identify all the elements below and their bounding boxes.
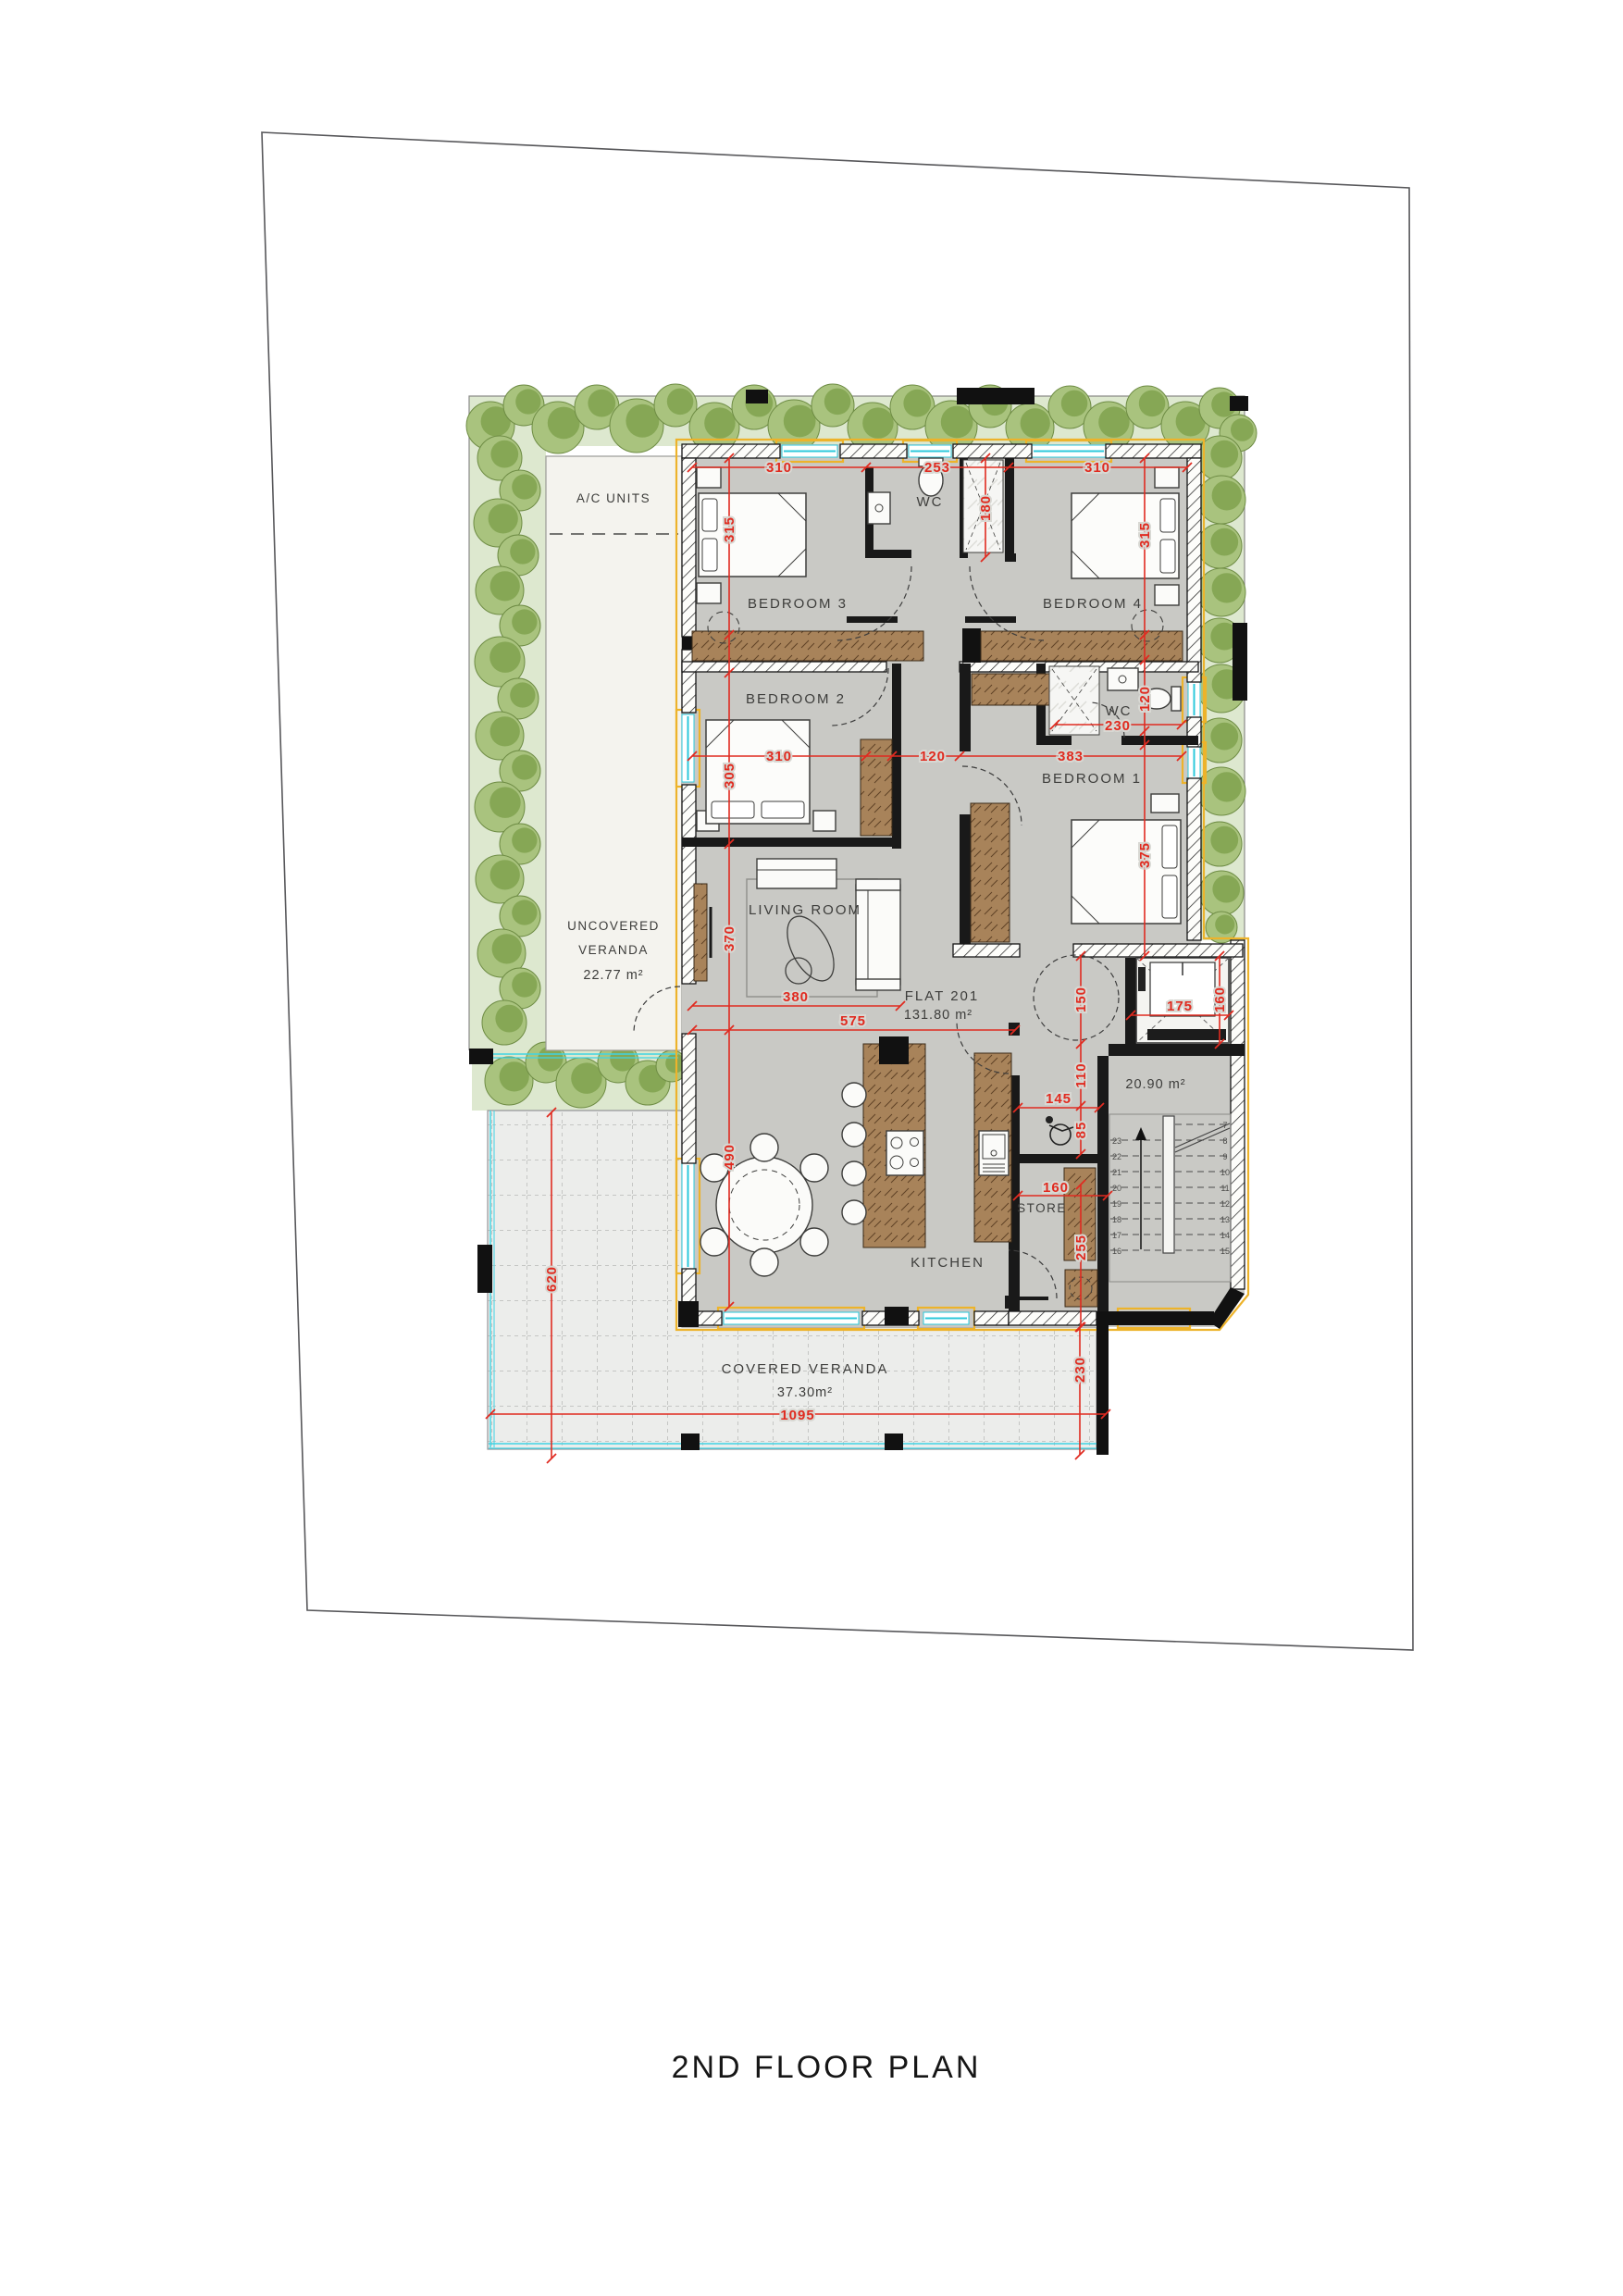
dim-253-top: 253 [924,460,950,476]
dim-383-bed1: 383 [1058,749,1084,764]
wc-sink [1108,668,1138,690]
uncovered-veranda-area: 22.77 m² [583,968,643,983]
stair-step-number: 20 [1112,1184,1121,1193]
dim-575: 575 [840,1013,866,1029]
dim-380-living: 380 [783,989,809,1005]
dim-175-elevator: 175 [1167,999,1193,1014]
kitchen-label: KITCHEN [911,1255,985,1271]
wc-top-label: WC [917,494,944,510]
stool [842,1083,866,1107]
dim-150-hall: 150 [1073,987,1089,1012]
stair-step-number: 18 [1112,1215,1121,1224]
tv-cabinet [694,884,707,981]
covered-veranda-area: 37.30m² [777,1385,833,1400]
drawing-title: 2ND FLOOR PLAN [672,2050,982,2085]
store-label: STORE [1017,1201,1067,1215]
dim-255-store: 255 [1073,1235,1089,1260]
stair-step-number: 14 [1220,1231,1230,1240]
dim-315-bed4: 315 [1137,522,1153,548]
tree [482,1000,527,1045]
toilet-tank [1171,687,1181,711]
dim-120-wc: 120 [1137,686,1153,712]
uncovered-veranda-label-2: VERANDA [578,943,649,957]
tree [811,384,854,427]
dim-310-top-left: 310 [766,460,792,476]
wardrobe-divider [962,628,981,663]
stool [842,1161,866,1185]
bedroom4-label: BEDROOM 4 [1043,596,1143,612]
chair [800,1228,828,1256]
stair-step-number: 15 [1220,1247,1230,1256]
flat-name-label: FLAT 201 [905,988,979,1004]
stool [842,1200,866,1224]
dim-180-wc: 180 [978,495,994,521]
stair-step-number: 21 [1112,1168,1121,1177]
column-marker [879,1036,909,1064]
dim-375-bed1: 375 [1137,842,1153,868]
dim-305-bed2: 305 [722,763,737,788]
dim-160-elevator: 160 [1212,987,1228,1012]
stove [886,1131,923,1175]
stair-step-number: 17 [1112,1231,1121,1240]
chair [750,1248,778,1276]
column-marker [957,388,1035,404]
chair [700,1228,728,1256]
bed [699,493,806,577]
tree [1199,871,1244,915]
dim-310-bed2: 310 [766,749,792,764]
dim-620-terrace: 620 [544,1266,560,1292]
wc-sink [868,492,890,524]
uncovered-veranda-label-1: UNCOVERED [567,919,660,933]
dim-230-veranda: 230 [1072,1357,1088,1383]
chair [750,1134,778,1161]
column-marker [1233,623,1247,701]
dim-160-store: 160 [1043,1180,1069,1196]
dim-370-living: 370 [722,925,737,951]
dim-490-kitchen: 490 [722,1144,737,1170]
dim-310-top-right: 310 [1084,460,1110,476]
nightstand [1151,794,1179,813]
bedroom3-label: BEDROOM 3 [748,596,848,612]
bedroom1-label: BEDROOM 1 [1042,771,1142,787]
dim-1095-veranda: 1095 [780,1408,814,1423]
column-marker [885,1433,903,1450]
dim-145-wc: 145 [1046,1091,1072,1107]
dining-table [716,1157,812,1253]
dim-120-hall: 120 [920,749,946,764]
closet [972,674,1049,705]
stair-rail [1163,1116,1174,1253]
stair-step-number: 8 [1222,1136,1227,1146]
bed [1072,493,1179,578]
nightstand [697,467,721,488]
wardrobe [971,803,1010,942]
nightstand [697,583,721,603]
dim-110-hall: 110 [1073,1062,1089,1087]
sofa [856,885,900,985]
stair-step-number: 12 [1220,1199,1230,1209]
stool [842,1123,866,1147]
stair-step-number: 11 [1220,1184,1229,1193]
floor-plan-page: A/C UNITS UNCOVERED VERANDA 22.77 m² COV… [0,0,1623,2296]
sofa [757,859,836,888]
covered-veranda-label: COVERED VERANDA [722,1361,889,1377]
nightstand [813,811,836,831]
stair-step-number: 22 [1112,1152,1121,1161]
floor-plan-drawing: A/C UNITS UNCOVERED VERANDA 22.77 m² COV… [0,0,1623,2296]
column-marker [746,390,768,403]
wardrobe [692,631,923,661]
dim-315-bed3: 315 [722,516,737,542]
bed [1072,820,1181,924]
chair [800,1154,828,1182]
veranda-edge-wall [1096,1311,1109,1455]
column-marker [469,1049,493,1064]
column-marker [1230,396,1248,411]
wc-right-label: WC [1106,703,1133,719]
wardrobe [861,739,892,836]
nightstand [1155,467,1179,488]
ac-units-label: A/C UNITS [576,491,650,505]
elevator-machinery [1147,1029,1226,1040]
kitchen-sink [979,1131,1009,1175]
stair-step-number: 10 [1220,1168,1230,1177]
dim-85-wc: 85 [1073,1122,1089,1139]
stair-step-number: 13 [1220,1215,1230,1224]
stair-step-number: 23 [1112,1136,1121,1146]
column-marker [681,1433,700,1450]
stair-hall-area-label: 20.90 m² [1125,1077,1185,1092]
column-marker [477,1245,492,1293]
stair-step-number: 19 [1112,1199,1121,1209]
stair-step-number: 16 [1112,1247,1121,1256]
flat-area-label: 131.80 m² [904,1008,973,1023]
stair-step-number: 9 [1222,1152,1227,1161]
wardrobe [981,631,1183,661]
living-room-label: LIVING ROOM [749,902,861,918]
nightstand [1155,585,1179,605]
dim-230-wc: 230 [1105,718,1131,734]
bedroom2-label: BEDROOM 2 [746,691,846,707]
